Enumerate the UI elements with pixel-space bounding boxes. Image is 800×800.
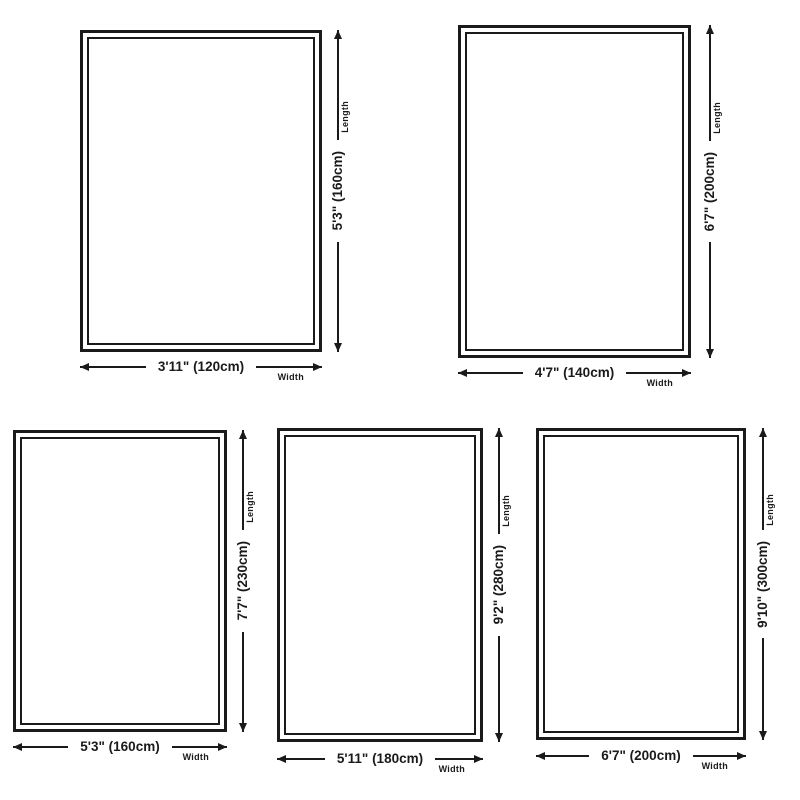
arrow-down-icon — [337, 242, 339, 352]
arrow-right-icon — [256, 366, 322, 368]
width-label: Width — [183, 753, 209, 762]
width-value: 5'11" (180cm) — [337, 752, 423, 766]
width-value: 6'7" (200cm) — [601, 749, 680, 763]
arrow-left-icon — [536, 755, 589, 757]
arrow-down-icon — [762, 638, 764, 740]
arrow-down-icon — [709, 242, 711, 358]
length-label: Length — [502, 495, 511, 527]
length-dimension: 9'10" (300cm) Length — [756, 428, 770, 740]
length-value: 5'3" (160cm) — [331, 151, 345, 230]
width-value: 5'3" (160cm) — [80, 740, 159, 754]
width-label: Width — [647, 379, 673, 388]
length-dimension: 9'2" (280cm) Length — [492, 428, 506, 742]
rug-outline — [13, 430, 227, 732]
length-label: Length — [713, 102, 722, 134]
arrow-up-icon — [709, 25, 711, 141]
length-dimension: 7'7" (230cm) Length — [236, 430, 250, 732]
rug-diagram-160x230: 7'7" (230cm) Length 5'3" (160cm) Width — [13, 430, 227, 732]
arrow-up-icon — [498, 428, 500, 534]
width-dimension: 5'3" (160cm) Width — [13, 738, 227, 756]
rug-diagram-200x300: 9'10" (300cm) Length 6'7" (200cm) Width — [536, 428, 746, 740]
length-value: 6'7" (200cm) — [703, 152, 717, 231]
length-label: Length — [246, 491, 255, 523]
arrow-down-icon — [242, 632, 244, 732]
arrow-left-icon — [458, 372, 523, 374]
width-label: Width — [702, 762, 728, 771]
length-value: 9'10" (300cm) — [756, 541, 770, 628]
arrow-right-icon — [626, 372, 691, 374]
length-label: Length — [766, 494, 775, 526]
arrow-right-icon — [172, 746, 227, 748]
rug-inner-border — [284, 435, 476, 735]
arrow-up-icon — [762, 428, 764, 530]
width-dimension: 5'11" (180cm) Width — [277, 750, 483, 768]
rug-diagram-120x160: 5'3" (160cm) Length 3'11" (120cm) Width — [80, 30, 322, 352]
length-label: Length — [341, 101, 350, 133]
rug-outline — [277, 428, 483, 742]
arrow-left-icon — [277, 758, 325, 760]
arrow-left-icon — [13, 746, 68, 748]
rug-diagram-140x200: 6'7" (200cm) Length 4'7" (140cm) Width — [458, 25, 691, 358]
arrow-up-icon — [337, 30, 339, 140]
width-dimension: 6'7" (200cm) Width — [536, 747, 746, 765]
rug-size-chart: 5'3" (160cm) Length 3'11" (120cm) Width … — [0, 0, 800, 800]
rug-diagram-180x280: 9'2" (280cm) Length 5'11" (180cm) Width — [277, 428, 483, 742]
arrow-right-icon — [435, 758, 483, 760]
width-dimension: 3'11" (120cm) Width — [80, 358, 322, 376]
width-label: Width — [278, 373, 304, 382]
length-dimension: 5'3" (160cm) Length — [331, 30, 345, 352]
length-dimension: 6'7" (200cm) Length — [703, 25, 717, 358]
rug-inner-border — [87, 37, 315, 345]
width-label: Width — [439, 765, 465, 774]
arrow-left-icon — [80, 366, 146, 368]
width-value: 3'11" (120cm) — [158, 360, 244, 374]
rug-outline — [80, 30, 322, 352]
rug-outline — [536, 428, 746, 740]
rug-inner-border — [465, 32, 684, 351]
rug-outline — [458, 25, 691, 358]
rug-inner-border — [20, 437, 220, 725]
arrow-right-icon — [693, 755, 746, 757]
width-dimension: 4'7" (140cm) Width — [458, 364, 691, 382]
rug-inner-border — [543, 435, 739, 733]
length-value: 7'7" (230cm) — [236, 541, 250, 620]
width-value: 4'7" (140cm) — [535, 366, 614, 380]
arrow-up-icon — [242, 430, 244, 530]
arrow-down-icon — [498, 636, 500, 742]
length-value: 9'2" (280cm) — [492, 545, 506, 624]
